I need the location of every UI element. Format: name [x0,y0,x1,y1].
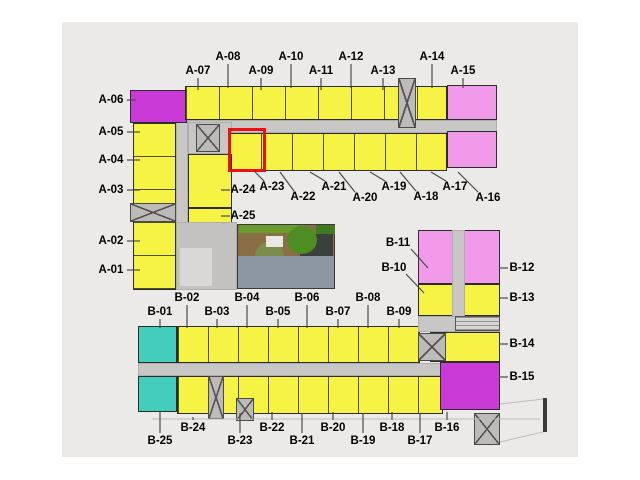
site-wall-bar [543,398,547,432]
pool-lounger [266,236,283,247]
unit-label-a-13: A-13 [371,65,396,77]
unit-label-b-07: B-07 [326,306,351,318]
unit-label-a-24: A-24 [231,184,256,196]
unit-label-a-02: A-02 [99,235,124,247]
unit-label-b-03: B-03 [205,306,230,318]
courtyard-tree [287,226,317,254]
lobby-inner [180,248,212,286]
unit-label-a-06: A-06 [99,94,124,106]
unit-label-b-11: B-11 [386,237,410,249]
unit-label-b-14: B-14 [510,338,535,350]
selected-unit-highlight [228,128,266,172]
unit-block-b01[interactable] [138,326,177,363]
corridor-b-horizontal [138,363,465,376]
stair-core-b-left [208,376,224,419]
unit-label-a-18: A-18 [414,191,439,203]
stair-core-b-mid [236,398,254,421]
unit-label-b-25: B-25 [148,435,173,447]
unit-label-b-06: B-06 [295,292,320,304]
unit-block-b25[interactable] [138,376,177,412]
unit-label-b-18: B-18 [380,422,405,434]
unit-label-b-24: B-24 [181,422,206,434]
stair-core-left [130,203,176,222]
unit-label-b-13: B-13 [510,292,535,304]
unit-block-a06[interactable] [130,90,187,123]
unit-label-b-12: B-12 [510,262,535,274]
unit-label-a-12: A-12 [339,51,364,63]
unit-label-b-09: B-09 [387,306,412,318]
unit-label-a-23: A-23 [260,181,285,193]
unit-label-b-15: B-15 [510,371,535,383]
unit-label-a-01: A-01 [99,264,124,276]
unit-label-a-21: A-21 [322,181,347,193]
unit-label-a-11: A-11 [309,65,333,77]
unit-label-b-16: B-16 [435,422,460,434]
unit-label-b-23: B-23 [228,435,253,447]
unit-label-b-01: B-01 [148,306,173,318]
unit-row-b02-b09[interactable] [177,326,420,363]
unit-label-b-10: B-10 [382,262,407,274]
unit-label-b-04: B-04 [235,292,260,304]
unit-label-a-08: A-08 [216,51,241,63]
unit-label-a-19: A-19 [382,181,407,193]
unit-block-b15[interactable] [440,362,500,410]
unit-label-a-07: A-07 [186,65,211,77]
swimming-pool [238,256,334,288]
unit-label-b-17: B-17 [408,435,433,447]
unit-label-a-25: A-25 [231,210,256,222]
service-room-box [455,316,500,331]
unit-label-a-09: A-09 [249,65,274,77]
unit-label-b-08: B-08 [356,292,381,304]
unit-label-a-22: A-22 [291,191,316,203]
unit-label-b-19: B-19 [351,435,376,447]
unit-block-a15[interactable] [447,85,497,120]
elevator-core-b [418,333,446,361]
unit-label-b-02: B-02 [175,292,200,304]
unit-label-b-05: B-05 [266,306,291,318]
unit-block-a24[interactable] [188,154,232,208]
unit-label-b-20: B-20 [321,422,346,434]
stair-core-top [398,78,416,128]
unit-label-a-20: A-20 [353,192,378,204]
unit-label-a-04: A-04 [99,154,124,166]
unit-label-a-03: A-03 [99,184,124,196]
unit-label-a-05: A-05 [99,126,124,138]
elevator-core-a [196,124,220,152]
unit-label-a-15: A-15 [451,65,476,77]
unit-label-a-16: A-16 [476,192,501,204]
unit-label-a-17: A-17 [443,181,468,193]
stair-core-bottom-right [474,413,500,445]
unit-label-b-22: B-22 [260,422,285,434]
unit-label-b-21: B-21 [290,435,315,447]
unit-label-a-14: A-14 [420,51,445,63]
unit-block-a16[interactable] [447,131,497,168]
floor-plan-canvas: A-01A-02A-03A-04A-05A-06A-07A-08A-09A-10… [0,0,640,480]
unit-label-a-10: A-10 [279,51,304,63]
